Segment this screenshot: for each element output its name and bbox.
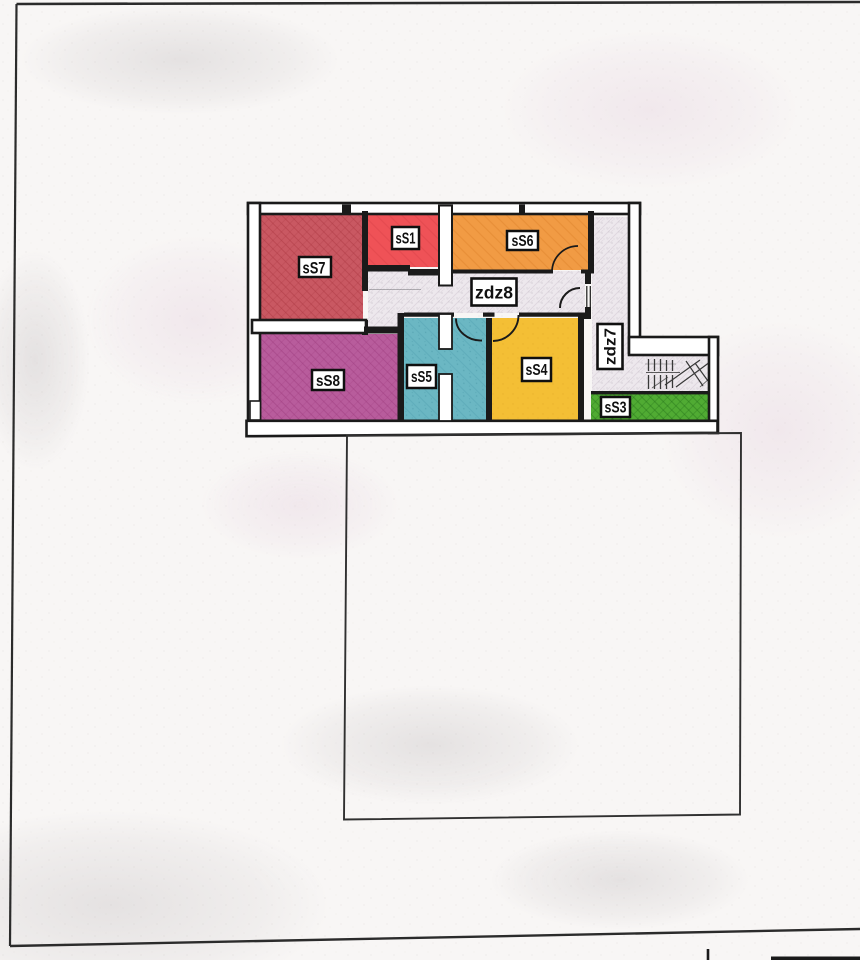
svg-text:sS7: sS7 bbox=[303, 259, 326, 278]
svg-text:zdz7: zdz7 bbox=[603, 328, 620, 365]
svg-text:sS3: sS3 bbox=[605, 400, 627, 417]
svg-text:sS8: sS8 bbox=[316, 373, 340, 390]
svg-text:zdz8: zdz8 bbox=[475, 283, 513, 303]
svg-text:sS6: sS6 bbox=[512, 233, 534, 250]
svg-text:sS5: sS5 bbox=[411, 369, 432, 386]
svg-text:sS4: sS4 bbox=[526, 362, 548, 379]
svg-text:sS1: sS1 bbox=[396, 231, 416, 248]
